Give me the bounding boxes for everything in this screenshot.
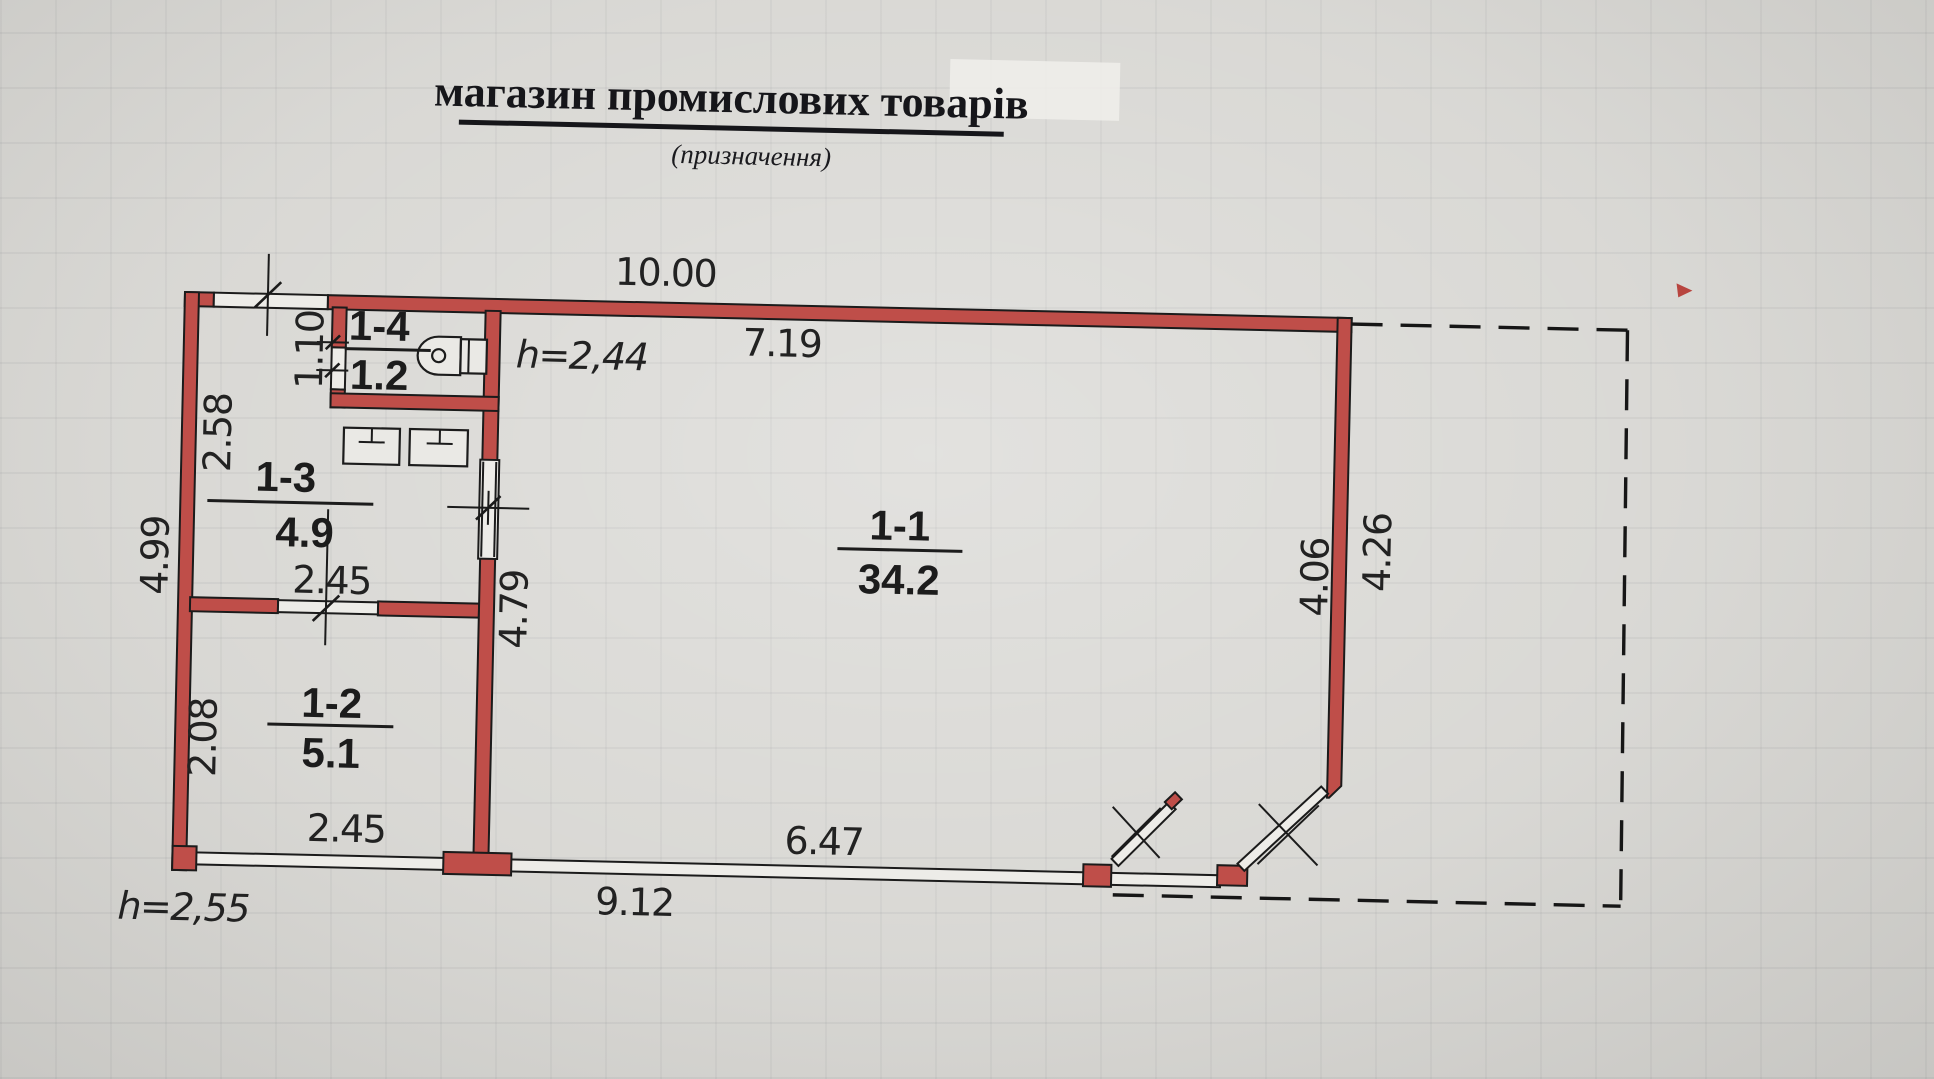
room-1-2-area: 5.1	[301, 729, 360, 777]
washbasin-2	[409, 429, 468, 466]
wall-divider-top	[482, 311, 500, 462]
washbasin-2-bar	[427, 443, 453, 444]
dim-r13-width: 2.45	[292, 557, 372, 603]
wall-top	[328, 295, 1352, 332]
toilet-drain	[432, 349, 445, 362]
room-1-1-area: 34.2	[857, 555, 940, 604]
dim-hall-bottom: 6.47	[784, 819, 864, 865]
bottom-glazed-wall	[194, 852, 1220, 887]
wall-bottom-left-corner	[172, 846, 197, 871]
dim-r14-left: 1.10	[287, 310, 333, 390]
washbasin-icon-2	[409, 429, 468, 466]
dashed-boundary-right	[1615, 330, 1634, 906]
dim-r13-left: 2.58	[195, 393, 241, 473]
toilet-tank	[460, 339, 487, 374]
drawing-subtitle: (призначення)	[671, 139, 831, 173]
dim-hall-height: h=2,44	[515, 332, 647, 379]
dim-right-inner: 4.06	[1292, 538, 1338, 618]
dim-left-total: 4.99	[132, 516, 178, 596]
dim-hall-top: 7.19	[742, 320, 822, 366]
dim-left-height: h=2,55	[117, 884, 250, 931]
toilet-icon	[417, 336, 487, 376]
dim-bottom-total: 9.12	[595, 879, 675, 925]
toilet-tank-line	[468, 339, 469, 373]
entrance-pier	[1083, 864, 1111, 887]
room-1-1-id: 1-1	[869, 501, 931, 549]
dim-r12-bottom: 2.45	[306, 806, 386, 852]
room-1-1-fraction	[837, 549, 962, 552]
dashed-boundary-bottom	[1113, 895, 1621, 906]
drawing-title: магазин промислових товарів	[434, 67, 1030, 129]
room-1-3-id: 1-3	[255, 453, 317, 501]
room-1-4-id: 1-4	[348, 302, 410, 350]
window-top	[214, 293, 328, 310]
washbasin-icon	[343, 428, 400, 465]
wall-r13-r12-right	[378, 601, 479, 617]
room-1-3-area: 4.9	[275, 508, 334, 556]
dim-right-outer: 4.26	[1355, 513, 1401, 593]
room-1-4-area: 1.2	[349, 351, 408, 399]
dashed-boundary-top	[1352, 324, 1628, 330]
room-1-2-fraction	[267, 724, 393, 727]
wall-r13-r12-left	[190, 597, 278, 613]
washbasin-1-bar	[359, 442, 385, 443]
entrance-door-leaf-open	[1111, 801, 1175, 867]
room-1-2-id: 1-2	[301, 679, 363, 727]
room-1-3-fraction	[207, 501, 373, 505]
red-mark	[1676, 283, 1692, 297]
dim-hall-left: 4.79	[491, 570, 537, 650]
dim-r12-left: 2.08	[180, 698, 226, 778]
dim-top-total: 10.00	[614, 250, 716, 296]
floor-plan-drawing: магазин промислових товарів (призначення…	[0, 0, 1934, 1079]
wall-divider-base-pier	[443, 852, 511, 876]
floor-plan: магазин промислових товарів (призначення…	[117, 41, 1697, 963]
